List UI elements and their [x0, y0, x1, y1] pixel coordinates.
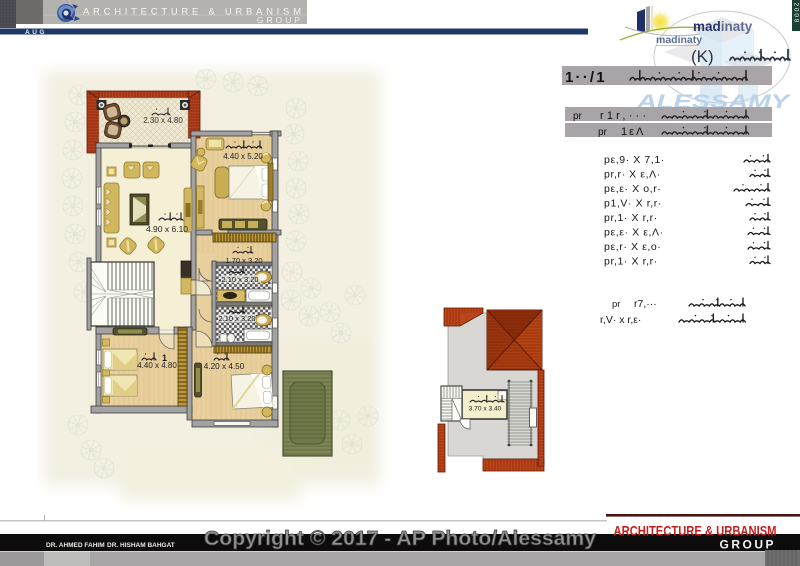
svg-text:1.70 x 3.20: 1.70 x 3.20 — [225, 256, 262, 265]
svg-text:Copyright © 2017 - AP Photo/Al: Copyright © 2017 - AP Photo/Alessamy — [204, 528, 597, 550]
svg-text:pε,9· X 7,1·: pε,9· X 7,1· — [604, 154, 665, 166]
svg-text:madinaty: madinaty — [656, 34, 702, 46]
svg-text:ARCHITECTURE & URBANISM: ARCHITECTURE & URBANISM — [614, 523, 777, 539]
svg-text:4.90 x 6.10: 4.90 x 6.10 — [146, 224, 188, 234]
svg-text:1εΛ: 1εΛ — [621, 126, 645, 138]
svg-text:p1,V· X r,r·: p1,V· X r,r· — [604, 198, 662, 210]
svg-text:pr: pr — [598, 127, 608, 138]
svg-text:(K): (K) — [691, 47, 714, 66]
svg-text:pε,ε· X o,r·: pε,ε· X o,r· — [604, 183, 661, 195]
svg-text:4.20 x 4.50: 4.20 x 4.50 — [204, 362, 245, 371]
svg-text:2.10 x 3.20: 2.10 x 3.20 — [218, 314, 255, 323]
svg-text:madinaty: madinaty — [693, 19, 753, 34]
svg-text:pr,1· X r,r·: pr,1· X r,r· — [604, 212, 658, 224]
svg-text:2.30 x 4.80: 2.30 x 4.80 — [143, 116, 183, 125]
svg-text:GROUP: GROUP — [257, 15, 303, 25]
svg-text:pr: pr — [573, 111, 583, 122]
svg-text:r1r,···: r1r,··· — [600, 110, 649, 122]
svg-text:pr,1· X r,r·: pr,1· X r,r· — [604, 256, 658, 268]
svg-text:2.10 x 3.20: 2.10 x 3.20 — [221, 275, 258, 284]
svg-text:4.40 x 5.20: 4.40 x 5.20 — [223, 152, 263, 161]
svg-text:GROUP: GROUP — [719, 538, 776, 552]
svg-text:pr: pr — [612, 299, 620, 310]
svg-text:r,V· x r,ε·: r,V· x r,ε· — [600, 314, 641, 326]
svg-text:DR. AHMED FAHIM: DR. AHMED FAHIM — [46, 542, 105, 549]
svg-text:DR. HISHAM BAHGAT: DR. HISHAM BAHGAT — [107, 542, 175, 549]
svg-text:2008: 2008 — [793, 3, 800, 25]
svg-text:1··/1: 1··/1 — [565, 69, 607, 86]
svg-text:pε,r· X ε,o·: pε,r· X ε,o· — [604, 241, 661, 253]
svg-text:3.70 x 3.40: 3.70 x 3.40 — [469, 406, 502, 413]
svg-text:AUG: AUG — [25, 29, 47, 36]
svg-text:r7,···: r7,··· — [634, 298, 657, 310]
svg-text:pε,ε· X ε,Λ·: pε,ε· X ε,Λ· — [604, 227, 664, 239]
svg-text:pr,r· X ε,Λ·: pr,r· X ε,Λ· — [604, 169, 661, 181]
svg-text:4.40 x 4.80: 4.40 x 4.80 — [137, 361, 177, 370]
